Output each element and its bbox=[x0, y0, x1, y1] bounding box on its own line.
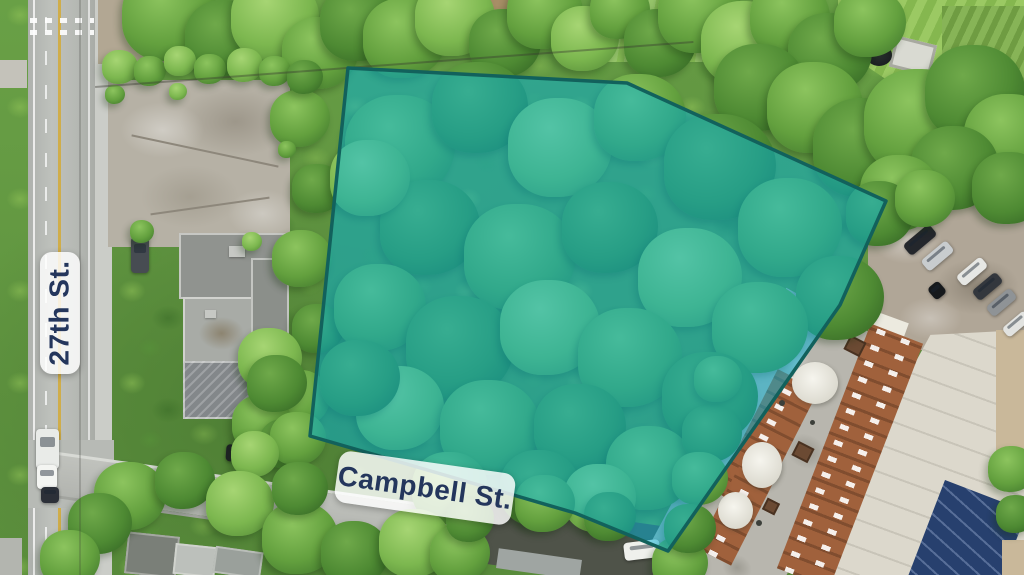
street-label-27th: 27th St. bbox=[40, 252, 80, 374]
street-label-27th-text: 27th St. bbox=[44, 260, 76, 365]
aerial-map-scene: 27th St. Campbell St. bbox=[0, 0, 1024, 575]
